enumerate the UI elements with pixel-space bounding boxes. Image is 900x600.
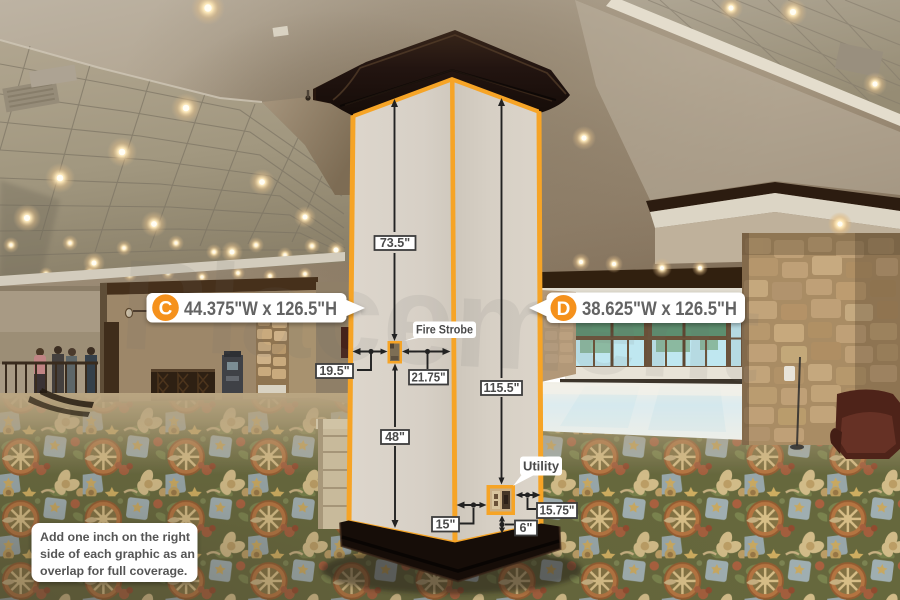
svg-text:21.75": 21.75" xyxy=(412,371,446,385)
svg-text:side of each graphic as an: side of each graphic as an xyxy=(40,547,195,561)
svg-text:15": 15" xyxy=(436,518,456,532)
svg-text:overlap for full coverage.: overlap for full coverage. xyxy=(40,564,187,578)
svg-text:Utility: Utility xyxy=(523,459,560,474)
svg-text:19.5": 19.5" xyxy=(319,364,349,378)
svg-text:38.625"W x 126.5"H: 38.625"W x 126.5"H xyxy=(582,299,737,320)
svg-text:6": 6" xyxy=(520,521,533,535)
svg-text:Add one inch on the right: Add one inch on the right xyxy=(40,530,190,544)
svg-text:Fire Strobe: Fire Strobe xyxy=(416,325,473,337)
svg-text:C: C xyxy=(159,299,173,320)
svg-text:115.5": 115.5" xyxy=(484,381,520,395)
svg-text:D: D xyxy=(557,299,571,320)
svg-text:15.75": 15.75" xyxy=(540,504,575,518)
svg-text:48": 48" xyxy=(385,430,405,444)
svg-text:44.375"W x 126.5"H: 44.375"W x 126.5"H xyxy=(184,299,337,320)
svg-text:73.5": 73.5" xyxy=(380,236,410,250)
